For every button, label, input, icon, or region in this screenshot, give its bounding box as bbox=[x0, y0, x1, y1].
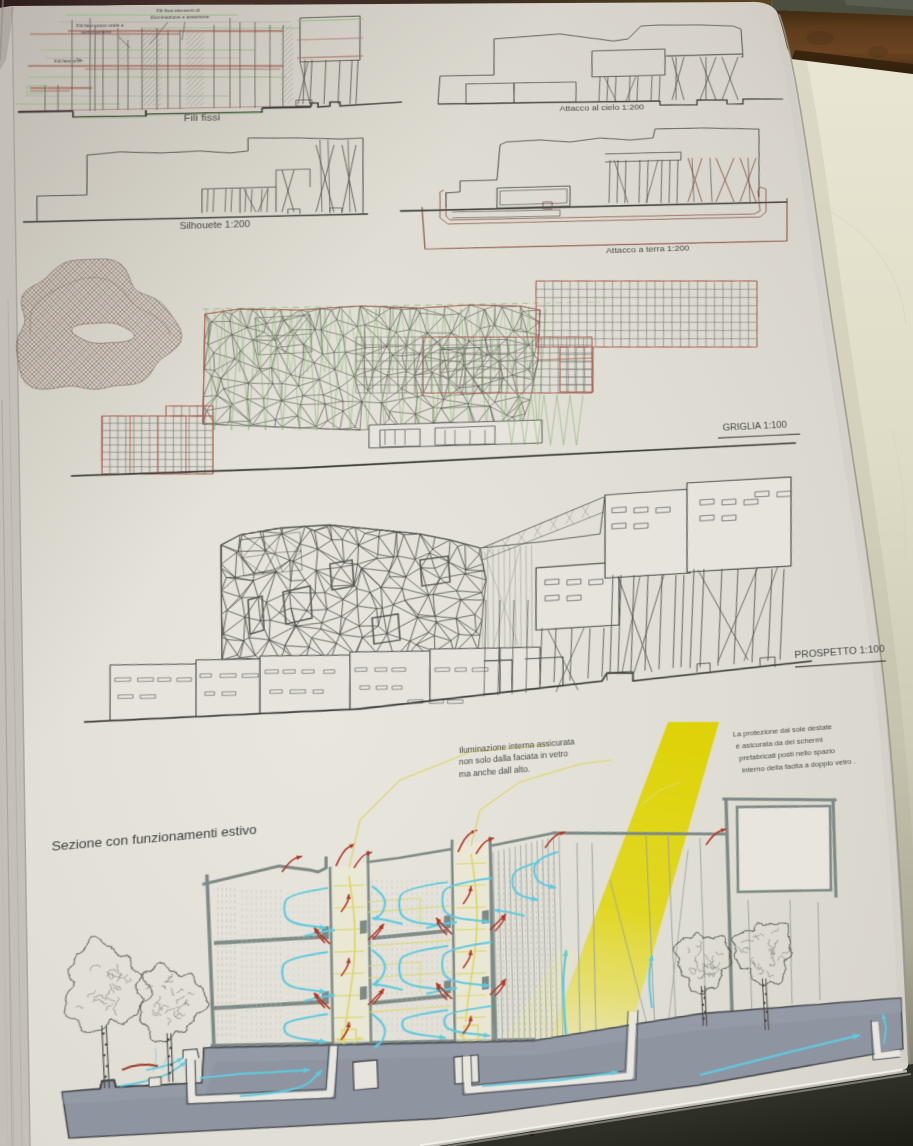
svg-text:Fili fissi corpo orale e: Fili fissi corpo orale e bbox=[76, 23, 124, 28]
svg-text:Attacco al cielo 1:200: Attacco al cielo 1:200 bbox=[559, 102, 644, 112]
svg-text:PROSPETTO 1:100: PROSPETTO 1:100 bbox=[794, 644, 885, 661]
svg-text:Fili fissi elementi di: Fili fissi elementi di bbox=[156, 8, 199, 14]
svg-text:GRIGLIA 1:100: GRIGLIA 1:100 bbox=[722, 420, 787, 432]
svg-text:illuminazione e areazione: illuminazione e areazione bbox=[151, 15, 210, 21]
svg-text:sezionamenti: sezionamenti bbox=[81, 30, 111, 35]
svg-text:Sezione con funzionamenti esti: Sezione con funzionamenti estivo bbox=[52, 823, 257, 854]
svg-text:ma anche dall alto.: ma anche dall alto. bbox=[459, 764, 530, 779]
svg-text:Silhouete 1:200: Silhouete 1:200 bbox=[179, 220, 250, 231]
svg-text:Attacco a terra 1:200: Attacco a terra 1:200 bbox=[606, 243, 690, 255]
svg-text:Fili fissi: Fili fissi bbox=[184, 113, 220, 124]
svg-text:Fili fissi orizl: Fili fissi orizl bbox=[54, 59, 82, 64]
